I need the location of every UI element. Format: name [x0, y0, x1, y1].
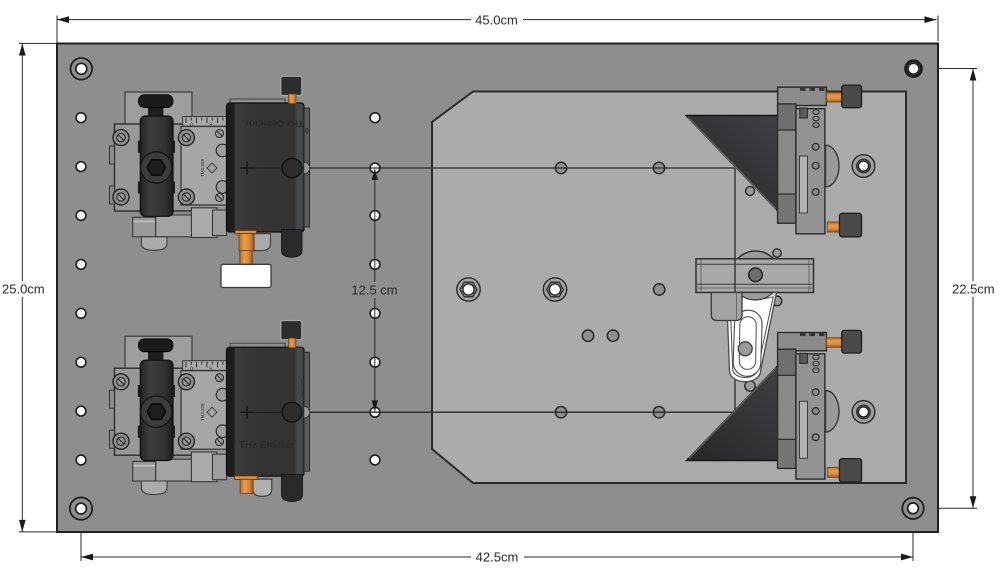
- svg-text:25.0cm: 25.0cm: [2, 282, 45, 297]
- svg-text:0: 0: [190, 121, 193, 127]
- svg-text:12.5 cm: 12.5 cm: [351, 283, 397, 298]
- svg-text:TM2.328: TM2.328: [200, 159, 205, 177]
- svg-text:45.0cm: 45.0cm: [475, 13, 518, 28]
- svg-text:2xM2-760: 2xM2-760: [300, 378, 305, 399]
- svg-text:5: 5: [209, 365, 212, 371]
- svg-text:22.5cm: 22.5cm: [952, 282, 995, 297]
- svg-text:5: 5: [209, 121, 212, 127]
- svg-text:42.5cm: 42.5cm: [476, 550, 519, 565]
- svg-text:THz Emitter: THz Emitter: [239, 440, 295, 451]
- svg-text:0: 0: [190, 365, 193, 371]
- svg-text:THz Detector: THz Detector: [245, 118, 304, 129]
- svg-text:TM2.328: TM2.328: [200, 403, 205, 421]
- svg-text:0: 0: [305, 128, 309, 135]
